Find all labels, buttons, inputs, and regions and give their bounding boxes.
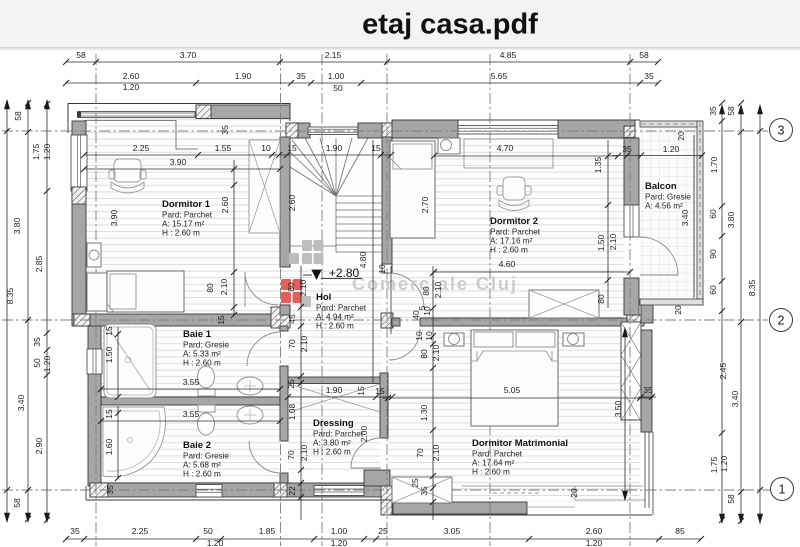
svg-text:2.10: 2.10 xyxy=(608,233,618,250)
svg-text:2.60: 2.60 xyxy=(586,526,603,536)
svg-text:20: 20 xyxy=(569,488,579,498)
svg-text:50: 50 xyxy=(32,358,42,368)
svg-text:3.55: 3.55 xyxy=(183,409,200,419)
svg-text:H : 2.60 m: H : 2.60 m xyxy=(162,229,200,238)
svg-text:35: 35 xyxy=(105,485,115,495)
svg-text:Pard: Gresie: Pard: Gresie xyxy=(645,193,691,202)
svg-text:10: 10 xyxy=(261,143,271,153)
svg-text:1.20: 1.20 xyxy=(719,455,729,472)
svg-text:2.10: 2.10 xyxy=(219,278,229,295)
svg-text:3.90: 3.90 xyxy=(170,157,187,167)
svg-text:1.50: 1.50 xyxy=(596,234,606,251)
svg-text:58: 58 xyxy=(726,106,736,116)
svg-text:1.60: 1.60 xyxy=(104,438,114,455)
svg-text:2.00: 2.00 xyxy=(359,425,369,442)
svg-text:2.45: 2.45 xyxy=(718,362,728,379)
svg-text:35: 35 xyxy=(643,385,653,395)
svg-text:Dressing: Dressing xyxy=(313,418,354,429)
svg-text:4.85: 4.85 xyxy=(500,50,517,60)
svg-text:A: 15.17 m²: A: 15.17 m² xyxy=(162,220,205,229)
svg-text:Pard: Parchet: Pard: Parchet xyxy=(490,228,541,237)
svg-text:Balcon: Balcon xyxy=(645,181,677,192)
svg-text:58: 58 xyxy=(13,111,23,121)
svg-text:+2.80: +2.80 xyxy=(329,266,360,280)
svg-text:10: 10 xyxy=(414,331,424,341)
svg-text:80: 80 xyxy=(421,286,431,296)
svg-text:58: 58 xyxy=(12,498,22,508)
svg-text:A: 5.33 m²: A: 5.33 m² xyxy=(183,350,221,359)
svg-text:1.55: 1.55 xyxy=(215,143,232,153)
svg-text:35: 35 xyxy=(32,337,42,347)
svg-text:35: 35 xyxy=(70,526,80,536)
svg-text:2.10: 2.10 xyxy=(299,335,309,352)
svg-text:25: 25 xyxy=(378,526,388,536)
svg-text:Baie 2: Baie 2 xyxy=(183,440,211,451)
svg-text:H : 2.60 m: H : 2.60 m xyxy=(183,359,221,368)
svg-text:Pard: Parchet: Pard: Parchet xyxy=(316,304,367,313)
svg-text:4.80: 4.80 xyxy=(358,251,368,268)
svg-text:5.05: 5.05 xyxy=(504,385,521,395)
svg-text:1.90: 1.90 xyxy=(326,143,343,153)
svg-text:2.10: 2.10 xyxy=(433,281,443,298)
svg-text:3.80: 3.80 xyxy=(12,217,22,234)
svg-text:A: 17.64 m²: A: 17.64 m² xyxy=(472,459,515,468)
svg-text:H : 2.60 m: H : 2.60 m xyxy=(313,448,351,457)
svg-text:Baie 1: Baie 1 xyxy=(183,329,212,340)
svg-text:3.80: 3.80 xyxy=(726,211,736,228)
svg-text:3.55: 3.55 xyxy=(183,377,200,387)
svg-text:3.40: 3.40 xyxy=(680,209,690,226)
svg-text:80: 80 xyxy=(286,282,296,292)
svg-text:2.60: 2.60 xyxy=(123,71,140,81)
svg-text:1.75: 1.75 xyxy=(31,143,41,160)
svg-text:8.35: 8.35 xyxy=(747,279,757,296)
svg-text:1.20: 1.20 xyxy=(42,355,52,372)
svg-text:1.90: 1.90 xyxy=(326,385,343,395)
svg-text:15: 15 xyxy=(287,143,297,153)
svg-text:22: 22 xyxy=(287,486,297,496)
svg-text:Dormitor 1: Dormitor 1 xyxy=(162,199,211,210)
svg-text:70: 70 xyxy=(415,448,425,458)
svg-text:15: 15 xyxy=(216,315,226,325)
svg-text:90: 90 xyxy=(708,249,718,259)
svg-text:2.10: 2.10 xyxy=(299,444,309,461)
svg-text:etaj casa.pdf: etaj casa.pdf xyxy=(362,9,538,41)
svg-text:1.50: 1.50 xyxy=(104,346,114,363)
svg-text:15: 15 xyxy=(104,326,114,336)
svg-text:1.20: 1.20 xyxy=(123,82,140,92)
svg-text:1.20: 1.20 xyxy=(663,144,680,154)
svg-text:1.00: 1.00 xyxy=(331,526,348,536)
svg-text:15: 15 xyxy=(356,386,366,396)
svg-text:2.60: 2.60 xyxy=(287,194,297,211)
svg-text:85: 85 xyxy=(675,526,685,536)
svg-text:10: 10 xyxy=(377,264,387,274)
svg-text:15: 15 xyxy=(104,409,114,419)
svg-text:2: 2 xyxy=(778,314,785,328)
svg-text:20: 20 xyxy=(676,131,686,141)
svg-text:35: 35 xyxy=(296,71,306,81)
svg-text:3.40: 3.40 xyxy=(16,394,26,411)
svg-text:58: 58 xyxy=(76,50,86,60)
svg-text:35: 35 xyxy=(220,125,230,135)
svg-text:70: 70 xyxy=(286,450,296,460)
svg-text:80: 80 xyxy=(596,294,606,304)
svg-text:1.08: 1.08 xyxy=(287,403,297,420)
svg-text:70: 70 xyxy=(287,339,297,349)
svg-text:3.70: 3.70 xyxy=(180,50,197,60)
svg-text:2.60: 2.60 xyxy=(220,196,230,213)
svg-text:1: 1 xyxy=(779,483,786,497)
svg-text:Dormitor 2: Dormitor 2 xyxy=(490,216,538,227)
svg-text:2.10: 2.10 xyxy=(431,444,441,461)
svg-text:3.90: 3.90 xyxy=(109,209,119,226)
svg-text:60: 60 xyxy=(708,285,718,295)
svg-text:A: 4.94 m²: A: 4.94 m² xyxy=(316,313,354,322)
svg-text:H : 2.60 m: H : 2.60 m xyxy=(472,468,510,477)
svg-text:35: 35 xyxy=(644,71,654,81)
svg-text:1.30: 1.30 xyxy=(419,404,429,421)
svg-text:80: 80 xyxy=(205,283,215,293)
svg-text:3.50: 3.50 xyxy=(613,400,623,417)
svg-text:15: 15 xyxy=(375,386,385,396)
svg-text:A: 4.56 m²: A: 4.56 m² xyxy=(645,202,683,211)
svg-text:58: 58 xyxy=(726,494,736,504)
svg-text:1.70: 1.70 xyxy=(709,156,719,173)
svg-text:1.85: 1.85 xyxy=(259,526,276,536)
svg-text:60: 60 xyxy=(708,209,718,219)
svg-text:2.10: 2.10 xyxy=(431,344,441,361)
svg-text:Dormitor Matrimonial: Dormitor Matrimonial xyxy=(472,438,568,449)
svg-text:2.10: 2.10 xyxy=(298,279,308,296)
svg-text:Pard: Parchet: Pard: Parchet xyxy=(162,211,213,220)
svg-text:45: 45 xyxy=(287,314,297,324)
svg-text:A: 3.80 m²: A: 3.80 m² xyxy=(313,439,351,448)
svg-text:2.85: 2.85 xyxy=(34,255,44,272)
svg-text:2.25: 2.25 xyxy=(132,526,149,536)
svg-text:3.40: 3.40 xyxy=(730,390,740,407)
svg-text:H : 2.60 m: H : 2.60 m xyxy=(183,470,221,479)
svg-text:3.05: 3.05 xyxy=(444,526,461,536)
svg-text:80: 80 xyxy=(419,349,429,359)
svg-text:2.15: 2.15 xyxy=(325,50,342,60)
svg-text:1.00: 1.00 xyxy=(328,71,345,81)
svg-text:4.70: 4.70 xyxy=(497,143,514,153)
svg-text:25: 25 xyxy=(286,379,296,389)
svg-text:50: 50 xyxy=(203,526,213,536)
svg-text:8.35: 8.35 xyxy=(5,287,15,304)
svg-text:20: 20 xyxy=(673,305,683,315)
svg-text:1.20: 1.20 xyxy=(586,538,603,547)
svg-text:35: 35 xyxy=(419,486,429,496)
svg-text:4.60: 4.60 xyxy=(499,259,516,269)
svg-text:5.65: 5.65 xyxy=(491,71,508,81)
svg-text:2.90: 2.90 xyxy=(34,437,44,454)
svg-text:35: 35 xyxy=(708,106,718,116)
svg-text:2.25: 2.25 xyxy=(133,143,150,153)
svg-text:A: 5.68 m²: A: 5.68 m² xyxy=(183,461,221,470)
svg-text:Pard: Gresie: Pard: Gresie xyxy=(183,452,229,461)
svg-text:1.20: 1.20 xyxy=(207,538,224,547)
svg-text:58: 58 xyxy=(639,50,649,60)
svg-text:1.75: 1.75 xyxy=(709,456,719,473)
svg-text:50: 50 xyxy=(333,83,343,93)
svg-text:1.90: 1.90 xyxy=(235,71,252,81)
svg-text:1.20: 1.20 xyxy=(42,143,52,160)
svg-text:Pard: Parchet: Pard: Parchet xyxy=(472,450,523,459)
svg-text:H : 2.60 m: H : 2.60 m xyxy=(316,322,354,331)
svg-text:Pard: Gresie: Pard: Gresie xyxy=(183,341,229,350)
svg-text:2.70: 2.70 xyxy=(420,196,430,213)
svg-text:Hol: Hol xyxy=(316,292,331,303)
svg-text:A: 17.16 m²: A: 17.16 m² xyxy=(490,237,533,246)
svg-text:1.20: 1.20 xyxy=(331,538,348,547)
svg-text:3: 3 xyxy=(778,124,785,138)
svg-text:35: 35 xyxy=(622,144,632,154)
svg-text:H : 2.60 m: H : 2.60 m xyxy=(490,246,528,255)
svg-text:40: 40 xyxy=(411,310,421,320)
svg-text:1.35: 1.35 xyxy=(593,156,603,173)
svg-text:Pard: Parchet: Pard: Parchet xyxy=(313,430,364,439)
